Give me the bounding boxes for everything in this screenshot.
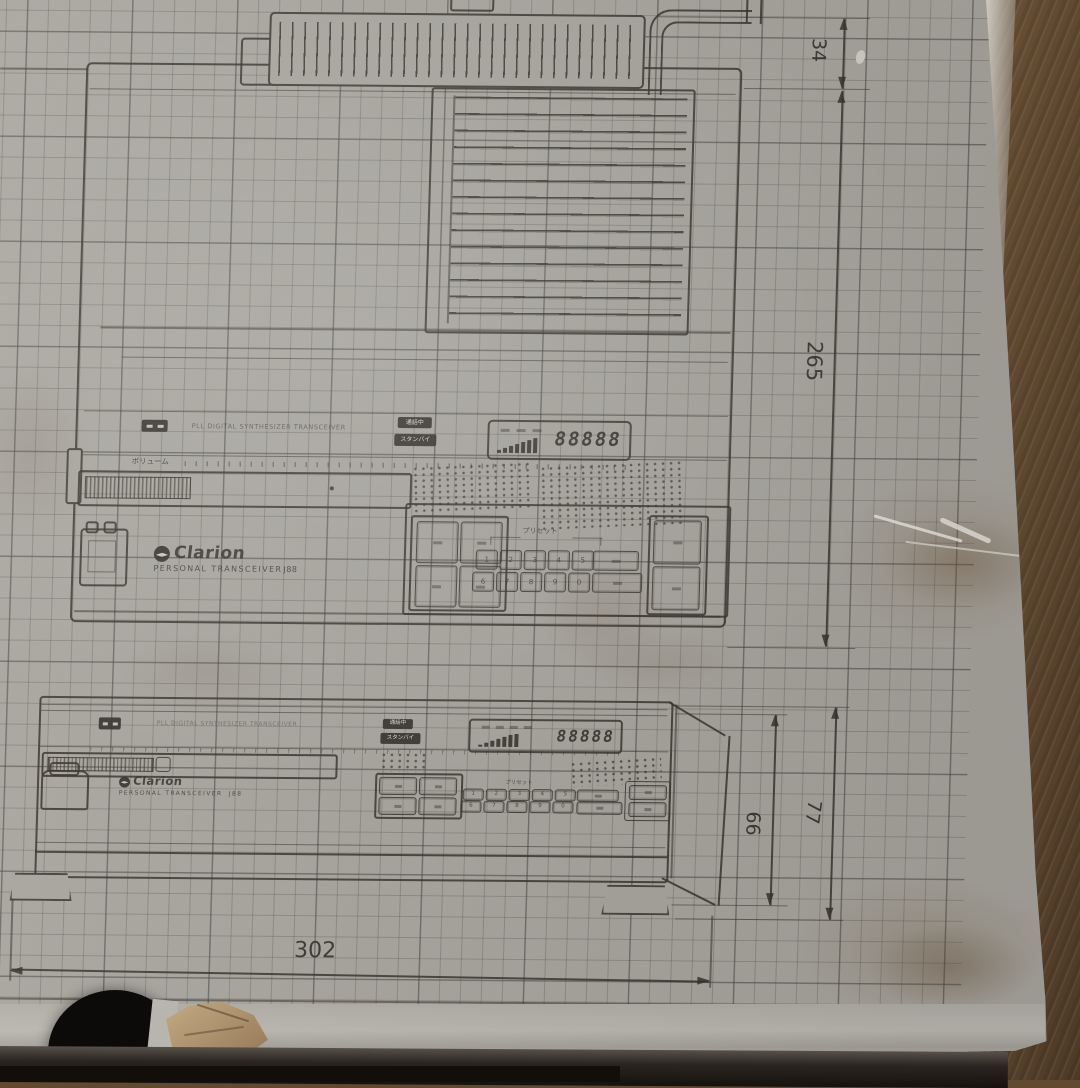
preset-key-7-front: 7 <box>483 801 504 813</box>
slider-dot <box>330 486 334 490</box>
wide-key-memory <box>592 573 643 593</box>
speaker-box-inner <box>87 540 116 572</box>
lcd-display: 88888 <box>487 420 632 461</box>
function-key <box>379 777 418 795</box>
arrow-left-icon <box>9 967 22 975</box>
preset-key-8: 8 <box>520 572 543 592</box>
arrow-down-icon <box>838 77 846 89</box>
lcd-digits: 88888 <box>553 430 623 450</box>
preset-key-5-front: 5 <box>555 789 576 801</box>
subtitle-text: PLL DIGITAL SYNTHESIZER TRANSCEIVER <box>192 423 346 431</box>
power-key <box>653 520 702 564</box>
model-badge-front <box>99 717 121 729</box>
arrow-up-icon <box>840 18 848 30</box>
lcd-signal-bars <box>497 438 537 453</box>
mic-holder-tab <box>49 762 79 776</box>
preset-label-front: プリセット <box>505 781 533 787</box>
status-badge-call-front: 通話中 <box>383 719 413 729</box>
preset-key-9-front: 9 <box>529 801 550 813</box>
preset-key-5: 5 <box>571 550 594 570</box>
preset-key-2-front: 2 <box>486 789 507 801</box>
arrow-down-icon <box>825 908 833 920</box>
preset-key-2: 2 <box>499 550 522 570</box>
speaker-box-tab-b <box>103 521 116 533</box>
volume-slider-groove <box>77 470 412 509</box>
right-foot <box>601 885 670 916</box>
left-foot <box>10 873 73 902</box>
wide-key-memory-front <box>576 802 622 815</box>
volume-label: ボリューム <box>131 458 169 466</box>
function-key <box>378 797 417 815</box>
function-key <box>414 565 457 607</box>
preset-key-6-front: 6 <box>460 801 481 813</box>
preset-key-3-front: 3 <box>509 789 530 801</box>
dim-77-label: 77 <box>801 799 823 825</box>
rear-top-tab <box>450 0 495 12</box>
dim-302-label: 302 <box>294 940 337 962</box>
arrow-up-icon <box>831 707 839 719</box>
function-key <box>419 777 458 795</box>
preset-bracket-left <box>490 537 520 539</box>
louver-slats <box>449 96 688 326</box>
wide-key-upper <box>592 551 639 571</box>
power-key-front <box>629 785 667 800</box>
arrow-down-icon <box>766 893 774 905</box>
lcd-mode-icons <box>481 725 533 730</box>
subtitle-text-front: PLL DIGITAL SYNTHESIZER TRANSCEIVER <box>157 721 298 728</box>
slider-tab-front <box>155 757 170 772</box>
preset-key-4-front: 4 <box>532 789 553 801</box>
status-badge-standby-front: スタンバイ <box>380 733 420 744</box>
model-badge <box>141 420 167 432</box>
lcd-digits-front: 88888 <box>555 728 616 744</box>
function-key <box>418 797 457 815</box>
preset-key-8-front: 8 <box>506 801 527 813</box>
speaker-box-tab-a <box>85 521 98 533</box>
preset-key-6: 6 <box>472 572 495 592</box>
memory-select-key <box>651 566 700 610</box>
dim-66-label: 66 <box>742 811 762 835</box>
dim-34-label: 34 <box>808 38 828 62</box>
model-number: J88 <box>283 566 297 574</box>
preset-key-0: 0 <box>568 572 591 592</box>
rear-vent-strip <box>268 12 646 89</box>
preset-key-9: 9 <box>544 572 567 592</box>
lcd-mode-icons <box>500 428 543 433</box>
preset-label: プリセット <box>522 528 557 535</box>
model-number-front: J88 <box>229 791 243 797</box>
preset-key-1-front: 1 <box>463 789 484 801</box>
preset-key-1: 1 <box>475 550 498 570</box>
product-name-front: PERSONAL TRANSCEIVER <box>119 791 223 798</box>
function-key <box>416 521 459 563</box>
preset-key-3: 3 <box>523 550 546 570</box>
product-name: PERSONAL TRANSCEIVER <box>153 565 282 574</box>
louver-vent-block <box>424 87 695 335</box>
brand-name: Clarion <box>173 545 246 563</box>
preset-key-7: 7 <box>496 572 519 592</box>
preset-bracket-right <box>572 537 602 539</box>
lcd-signal-bars <box>478 734 518 747</box>
speaker-box <box>79 528 129 586</box>
memory-select-key-front <box>628 802 666 817</box>
arrow-right-icon <box>697 977 710 985</box>
arrow-down-icon <box>821 635 829 647</box>
status-badge-call: 通話中 <box>398 417 432 428</box>
preset-key-4: 4 <box>547 550 570 570</box>
volume-slider-knob <box>84 476 191 499</box>
wide-key-upper-front <box>577 790 619 802</box>
grille-dots-left-front <box>379 752 430 772</box>
preset-bracket-stub-l <box>490 537 492 545</box>
arrow-up-icon <box>837 91 845 103</box>
grid-paper-box-top: PLL DIGITAL SYNTHESIZER TRANSCEIVER 通話中 … <box>0 0 1080 1080</box>
status-badge-standby: スタンバイ <box>394 434 436 446</box>
dim-265-label: 265 <box>803 341 825 381</box>
handle-tube-inner <box>660 21 752 96</box>
preset-bracket-stub-r <box>600 538 602 546</box>
brand-name-front: Clarion <box>132 776 183 788</box>
rear-vent-slots <box>278 22 636 79</box>
lcd-display-front: 88888 <box>468 719 623 754</box>
preset-key-0-front: 0 <box>552 801 573 813</box>
arrow-up-icon <box>771 714 779 726</box>
